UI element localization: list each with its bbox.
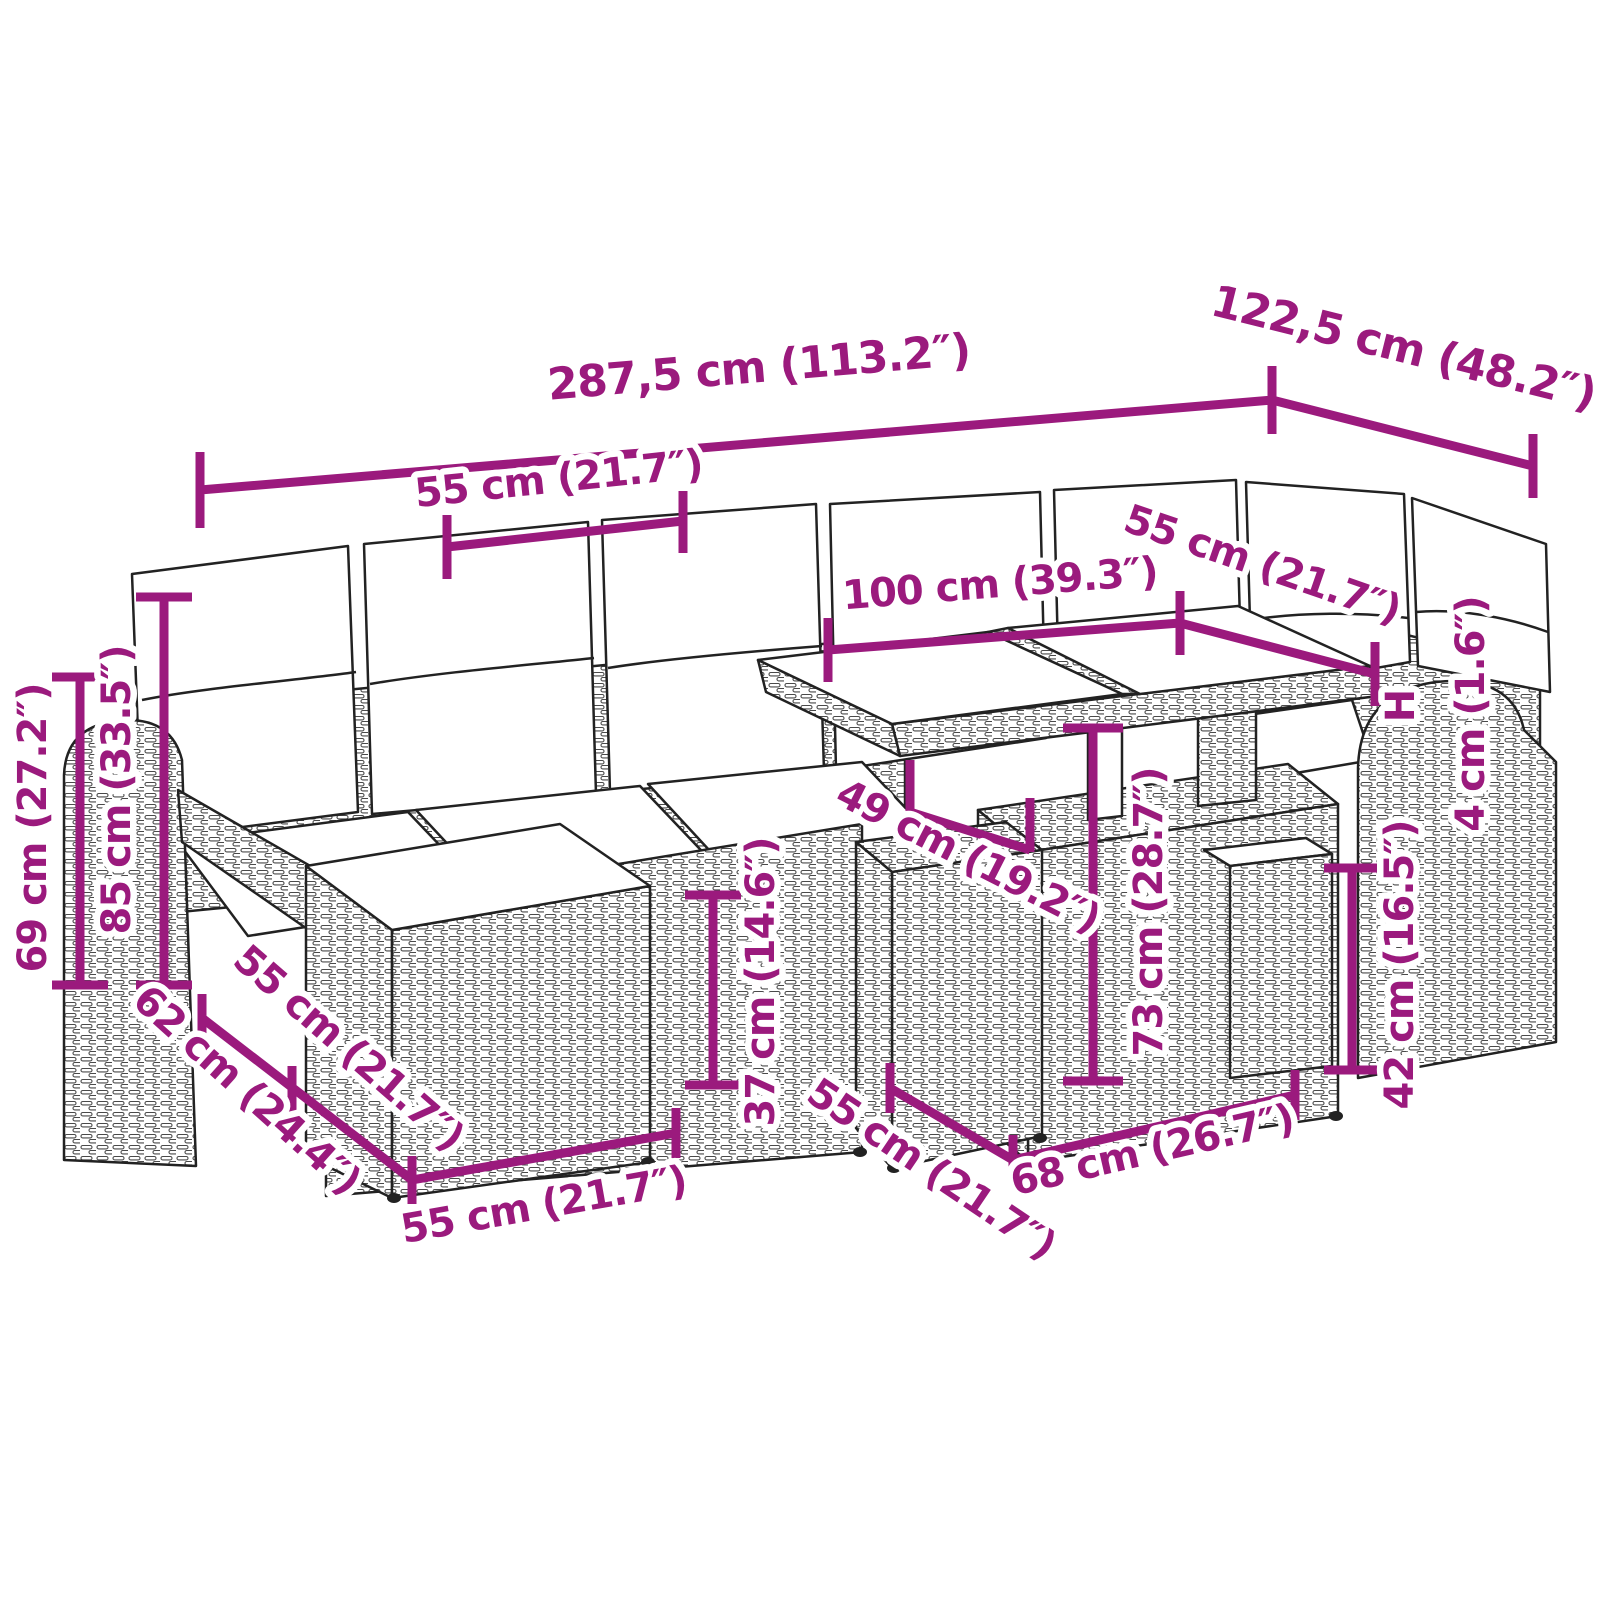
label-seat-module-width-top: 55 cm (21.7″): [413, 441, 705, 517]
dimension-diagram-page: 287,5 cm (113.2″) 122,5 cm (48.2″) 55 cm…: [0, 0, 1600, 1600]
label-back-height: 85 cm (33.5″): [94, 645, 140, 934]
label-arm-height: 69 cm (27.2″): [10, 683, 56, 972]
label-overall-width: 287,5 cm (113.2″): [545, 324, 972, 410]
label-cushion-thickness: 4 cm (1.6″): [1448, 596, 1494, 831]
label-footstool-height: 42 cm (16.5″): [1377, 820, 1423, 1109]
label-cushion-height-symbol: H: [1378, 690, 1424, 722]
label-seat-height: 37 cm (14.6″): [738, 837, 784, 1126]
dim-line-overall-depth: [1272, 400, 1533, 498]
furniture-dimension-diagram: 287,5 cm (113.2″) 122,5 cm (48.2″) 55 cm…: [0, 0, 1600, 1600]
label-table-height: 73 cm (28.7″): [1126, 767, 1172, 1056]
